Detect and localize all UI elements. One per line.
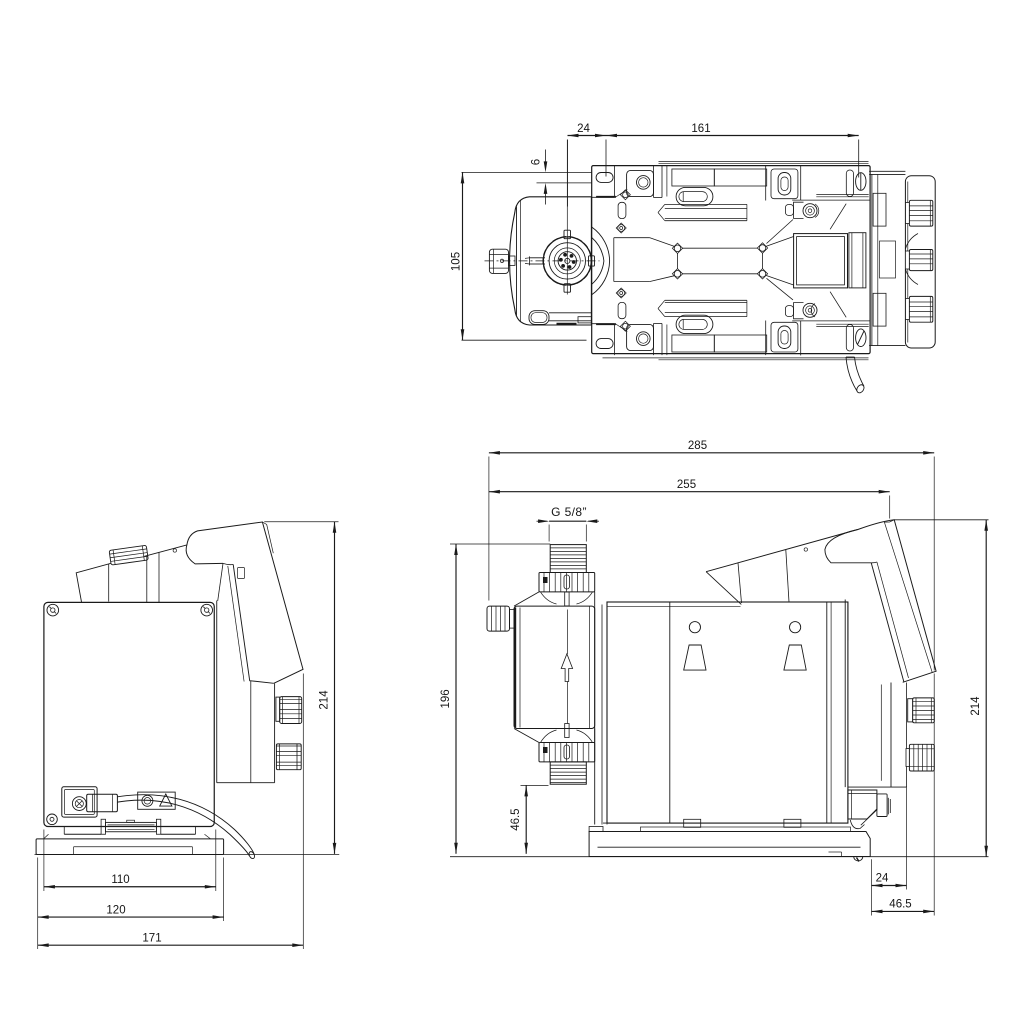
- svg-text:161: 161: [691, 123, 710, 135]
- svg-text:105: 105: [450, 252, 462, 271]
- svg-text:196: 196: [440, 689, 452, 708]
- svg-text:214: 214: [319, 690, 331, 710]
- svg-text:214: 214: [970, 696, 982, 716]
- svg-text:46.5: 46.5: [510, 808, 522, 830]
- svg-text:285: 285: [688, 440, 707, 452]
- svg-text:120: 120: [106, 904, 125, 916]
- svg-text:46.5: 46.5: [889, 899, 911, 911]
- svg-text:G 5/8”: G 5/8”: [551, 505, 587, 519]
- svg-text:6: 6: [531, 159, 543, 165]
- svg-text:24: 24: [876, 873, 889, 885]
- svg-text:171: 171: [142, 932, 161, 944]
- svg-text:24: 24: [577, 123, 590, 135]
- svg-text:110: 110: [111, 874, 129, 886]
- svg-text:255: 255: [677, 479, 696, 491]
